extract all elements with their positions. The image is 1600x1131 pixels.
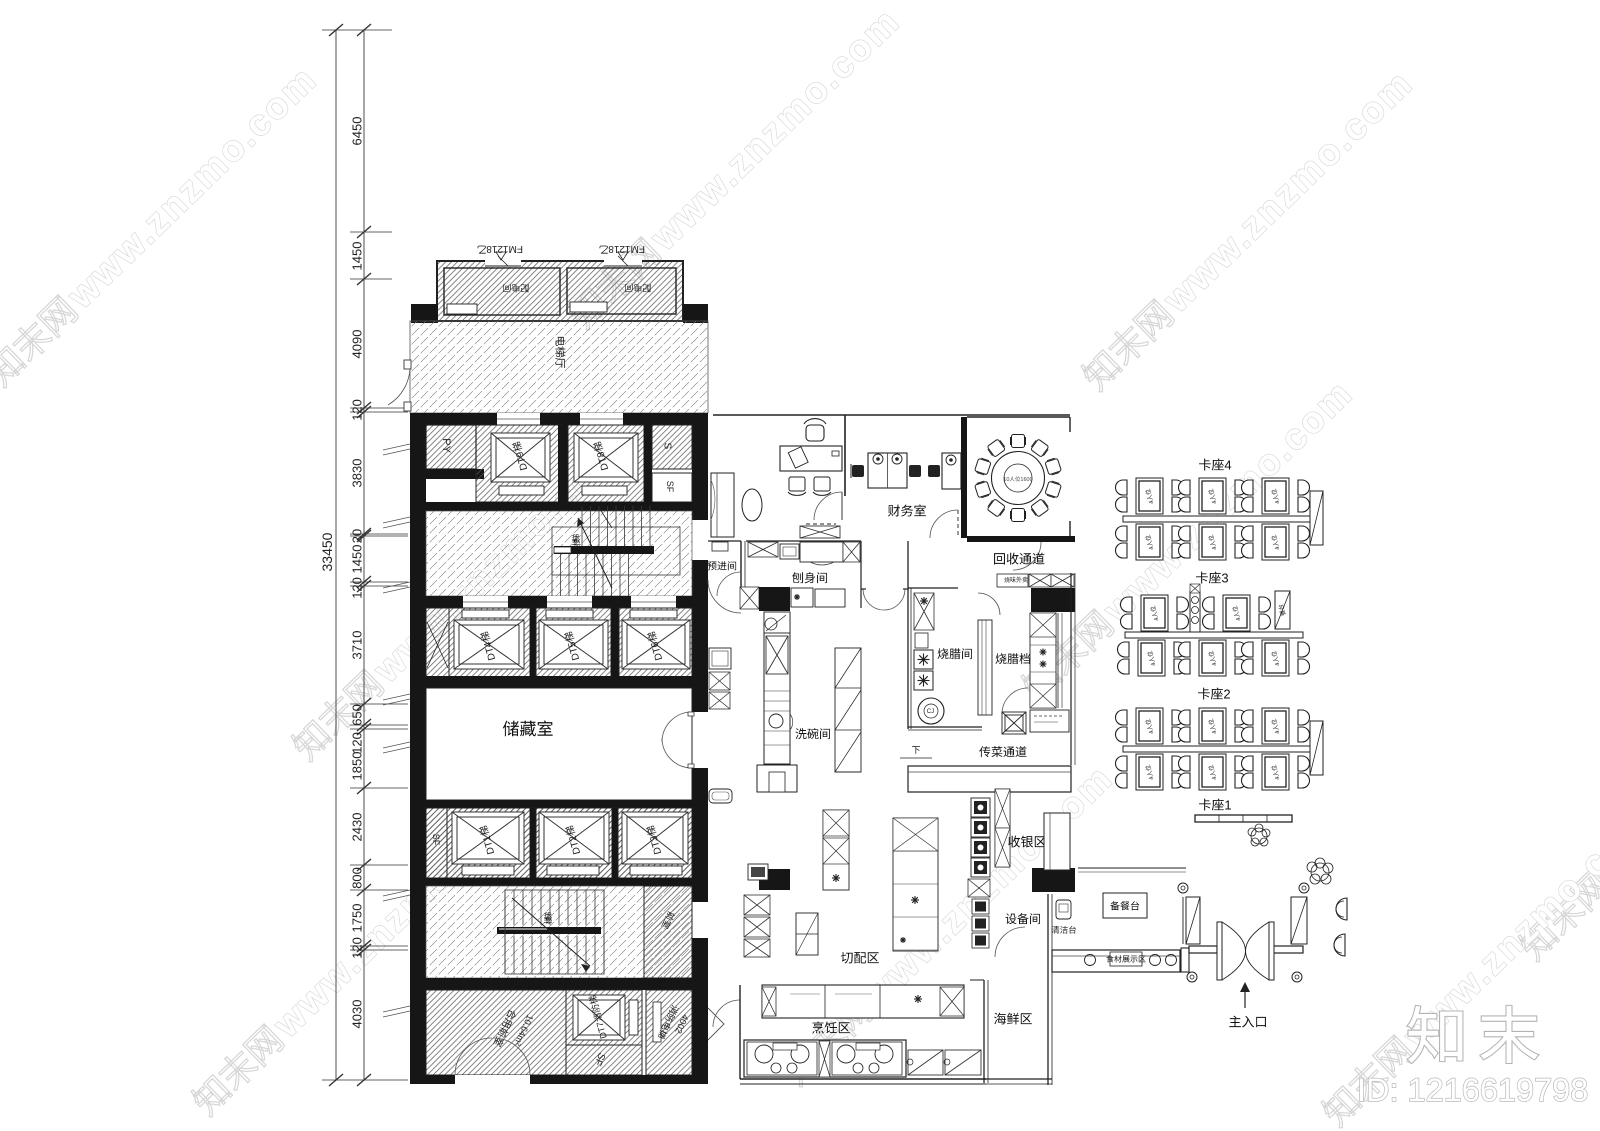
svg-text:PY: PY	[440, 438, 452, 453]
svg-text:4030: 4030	[350, 1000, 365, 1029]
svg-text:120: 120	[350, 732, 365, 754]
svg-text:1600: 1600	[1020, 477, 1032, 483]
svg-text:4090: 4090	[350, 330, 365, 359]
svg-text:120: 120	[350, 577, 365, 599]
svg-text:1450: 1450	[350, 545, 365, 574]
svg-text:ID: 1216619798: ID: 1216619798	[1357, 1072, 1588, 1108]
svg-text:33450: 33450	[319, 532, 335, 571]
svg-text:1: 1	[1224, 798, 1231, 813]
svg-text:味外卖: 味外卖	[1010, 576, 1028, 584]
svg-text:120: 120	[350, 399, 365, 421]
svg-text:SF: SF	[665, 481, 675, 493]
svg-text:120: 120	[350, 937, 365, 959]
svg-text:S: S	[662, 443, 673, 450]
svg-text:800: 800	[350, 867, 365, 889]
svg-text:3710: 3710	[350, 631, 365, 660]
svg-text:2: 2	[1223, 687, 1230, 702]
svg-text:6450: 6450	[350, 117, 365, 146]
svg-text:CJ: CJ	[927, 709, 934, 715]
svg-text:650: 650	[350, 704, 365, 726]
svg-text:2430: 2430	[350, 813, 365, 842]
svg-text:SF: SF	[431, 834, 441, 846]
svg-text:10: 10	[1003, 477, 1009, 483]
svg-text:4: 4	[1224, 458, 1231, 473]
svg-text:1450: 1450	[350, 242, 365, 271]
svg-text:1750: 1750	[350, 904, 365, 933]
svg-text:3: 3	[1221, 571, 1228, 586]
svg-text:1850: 1850	[350, 752, 365, 781]
svg-text:20: 20	[350, 529, 365, 543]
svg-text:3830: 3830	[350, 459, 365, 488]
